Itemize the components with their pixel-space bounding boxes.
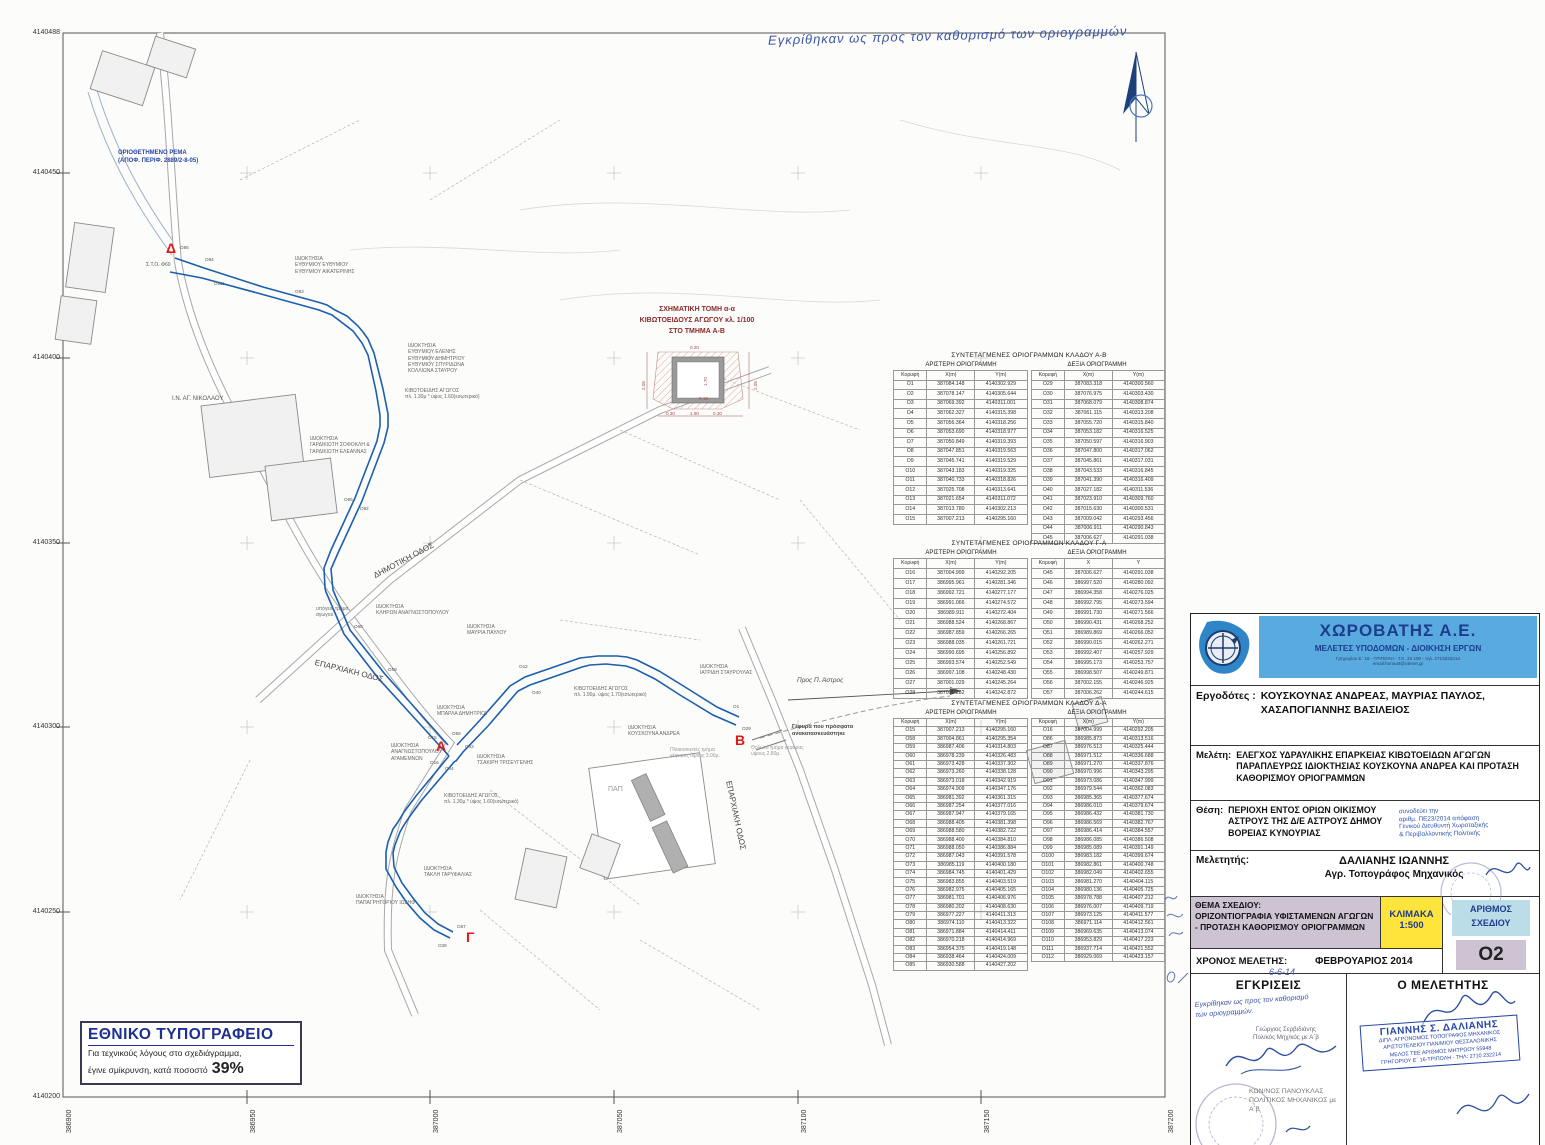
approvals-header: ΕΓΚΡΙΣΕΙΣ <box>1191 978 1346 992</box>
table-row: O94386986.0104140379.674 <box>1031 802 1165 810</box>
employers-value: ΚΟΥΣΚΟΥΝΑΣ ΑΝΔΡΕΑΣ, ΜΑΥΡΙΑΣ ΠΑΥΛΟΣ, ΧΑΣΑ… <box>1261 690 1534 741</box>
table-row: O58387004.8614140295.354 <box>894 735 1028 743</box>
map-label: ΙΔΙΟΚΤΗΣΙΑ ΕΥΘΥΜΙΟΥ ΕΥΘΥΜΙΟΥ ΕΥΘΥΜΙΟΥ ΑΙ… <box>295 256 355 275</box>
table-row: O111386937.7144140421.552 <box>1031 945 1165 953</box>
table-row: O55386998.5074140249.871 <box>1031 669 1165 679</box>
table-row: O35387050.5974140316.903 <box>1031 438 1165 448</box>
table-row: O80386974.1104140413.322 <box>894 920 1028 928</box>
map-label: ΙΔΙΟΚΤΗΣΙΑ ΜΠΑΡΛΑ ΔΗΜΗΤΡΙΟΥ <box>437 705 488 718</box>
table-row: O2387078.1474140305.644 <box>894 390 1028 400</box>
reduction-stamp-line2: έγινε σμίκρυνση, κατά ποσοστό <box>88 1065 208 1075</box>
table-row: O87386976.5134140325.444 <box>1031 744 1165 752</box>
table-group-title: ΣΥΝΤΕΤΑΓΜΕΝΕΣ ΟΡΙΟΓΡΑΜΜΩΝ ΚΛΑΔΟΥ Α-Β <box>893 352 1165 359</box>
location-row: Θέση: ΠΕΡΙΟΧΗ ΕΝΤΟΣ ΟΡΙΩΝ ΟΙΚΙΣΜΟΥ ΑΣΤΡΟ… <box>1191 801 1539 851</box>
table-subheader: ΔΕΞΙΑ ΟΡΙΟΓΡΑΜΜΗ <box>1029 550 1165 556</box>
table-row: O74386984.7454140401.429 <box>894 870 1028 878</box>
reduction-percent: 39% <box>212 1060 244 1077</box>
table-row: O61386973.4284140337.302 <box>894 760 1028 768</box>
map-label: ΟΡΙΟΘΕΤΗΜΕΝΟ ΡΕΜΑ (ΑΠΟΦ. ΠΕΡΙΦ. 2889/2-8… <box>118 150 198 165</box>
vertex-label: O16 <box>430 760 439 765</box>
table-column-header: X(m) <box>927 559 975 569</box>
table-row: O9387045.7414140319.529 <box>894 457 1028 467</box>
company-band: ΧΩΡΟΒΑΤΗΣ Α.Ε. ΜΕΛΕΤΕΣ ΥΠΟΔΟΜΩΝ - ΔΙΟΙΚΗ… <box>1259 616 1537 678</box>
designer-rect-stamp: ΓΙΑΝΝΗΣ Σ. ΔΑΛΙΑΝΗΣ ΔΙΠΛ. ΑΓΡΟΝΟΜΟΣ ΤΟΠΟ… <box>1360 1015 1521 1072</box>
map-label: Θολωτό τμήμα γέφυρας ύψους 2.80μ. <box>751 745 804 758</box>
table-row: O90386970.9964140343.295 <box>1031 769 1165 777</box>
subject-value: ΟΡΙΖΟΝΤΙΟΓΡΑΦΙΑ ΥΦΙΣΤΑΜΕΝΩΝ ΑΓΩΓΩΝ - ΠΡΟ… <box>1195 911 1376 933</box>
table-row: O78386980.2024140408.630 <box>894 903 1028 911</box>
y-axis-tick: 4140450 <box>22 169 60 176</box>
scale-value: 1:500 <box>1381 920 1442 931</box>
table-row: O57387006.2624140244.615 <box>1031 689 1165 699</box>
table-row: O84386938.4644140424.009 <box>894 953 1028 961</box>
subject-cell: ΘΕΜΑ ΣΧΕΔΙΟΥ: ΟΡΙΖΟΝΤΙΟΓΡΑΦΙΑ ΥΦΙΣΤΑΜΕΝΩ… <box>1191 897 1381 948</box>
table-row: O69386988.5804140382.722 <box>894 828 1028 836</box>
table-column-header: Y(m) <box>1112 371 1164 381</box>
drawing-number-label-cell: ΑΡΙΘΜΟΣ ΣΧΕΔΙΟΥ <box>1452 900 1530 936</box>
map-label: ΙΔΙΟΚΤΗΣΙΑ ΓΑΡΔΙΚΙΩΤΗ ΣΟΦΟΚΛΗ & ΓΑΡΔΙΚΙΩ… <box>310 436 370 455</box>
table-group-title: ΣΥΝΤΕΤΑΓΜΕΝΕΣ ΟΡΙΟΓΡΑΜΜΩΝ ΚΛΑΔΟΥ Δ-Α <box>893 700 1165 707</box>
table-row: O36387047.8004140317.062 <box>1031 447 1165 457</box>
table-row: O98386986.0854140386.508 <box>1031 836 1165 844</box>
y-axis-tick: 4140200 <box>22 1093 60 1100</box>
table-row: O101386982.8614140400.748 <box>1031 861 1165 869</box>
table-row: O95386986.4324140381.730 <box>1031 811 1165 819</box>
x-axis-tick: 386950 <box>250 1110 257 1133</box>
table-row: O93386985.3654140377.674 <box>1031 794 1165 802</box>
map-label: ΙΔΙΟΚΤΗΣΙΑ ΑΝΑΓΝΩΣΤΟΠΟΥΛΟΥ ΑΓΑΜΕΜΝΩΝ <box>391 743 442 762</box>
map-label: ΚΙΒΩΤΟΕΙΔΗΣ ΑΓΩΓΟΣ πλ. 1.30μ.* ύψος 1.60… <box>444 793 519 806</box>
map-label: ΙΔΙΟΚΤΗΣΙΑ ΤΣΑΚΙΡΗ ΤΡΙΣΕΥΓΕΝΗΣ <box>477 754 533 767</box>
table-row: O22386987.8594140266.265 <box>894 629 1028 639</box>
table-row: O41387023.9104140309.760 <box>1031 495 1165 505</box>
location-value: ΠΕΡΙΟΧΗ ΕΝΤΟΣ ΟΡΙΩΝ ΟΙΚΙΣΜΟΥ ΑΣΤΡΟΥΣ ΤΗΣ… <box>1228 805 1413 846</box>
node-marker-Α: Α <box>436 738 446 754</box>
table-row: O23386988.0354140261.721 <box>894 639 1028 649</box>
vertex-label: O1 <box>733 704 739 709</box>
table-row: O16387004.9994140292.205 <box>1031 727 1165 735</box>
table-subheader: ΑΡΙΣΤΕΡΗ ΟΡΙΟΓΡΑΜΜΗ <box>893 710 1029 716</box>
table-row: O19386991.0664140274.572 <box>894 599 1028 609</box>
table-column-header: Κορυφή <box>1031 371 1064 381</box>
table-row: O26386997.1084140248.430 <box>894 669 1028 679</box>
table-row: O66386987.2544140377.016 <box>894 802 1028 810</box>
contour-lines <box>350 120 1120 302</box>
table-row: O106386976.0074140409.719 <box>1031 903 1165 911</box>
map-label: Ι.Ν. ΑΓ. ΝΙΚΟΛΑΟΥ <box>172 396 223 404</box>
table-row: O56387002.1554140246.925 <box>1031 679 1165 689</box>
map-label: ΙΔΙΟΚΤΗΣΙΑ ΚΛΗΡΩΝ ΑΝΑΓΝΩΣΤΟΠΟΥΛΟΥ <box>376 604 449 617</box>
map-label: ΙΔΙΟΚΤΗΣΙΑ ΠΑΠΑΓΡΗΓΟΡΙΟΥ ΙΩΣΗΦ <box>356 894 415 907</box>
table-row: O18386992.7214140277.177 <box>894 589 1028 599</box>
designer-extra-signature <box>1447 1074 1537 1144</box>
handwriting-marks <box>1165 896 1188 983</box>
coordinate-table: ΚορυφήX(m)Y(m)O16387004.9994140292.205O1… <box>893 558 1028 699</box>
table-row: O42387015.6304140300.531 <box>1031 505 1165 515</box>
table-row: O33387055.7204140315.840 <box>1031 418 1165 428</box>
coordinate-table: ΚορυφήX(m)Y(m)O29387083.3184140300.560O3… <box>1031 370 1166 544</box>
table-row: O40387027.1824140311.536 <box>1031 486 1165 496</box>
table-row: O21386988.5244140268.867 <box>894 619 1028 629</box>
table-row: O107386973.1254140411.577 <box>1031 911 1165 919</box>
table-column-header: X <box>1064 559 1112 569</box>
table-row: O5387056.3644140318.256 <box>894 418 1028 428</box>
map-label: ΠΑΠ <box>608 786 623 795</box>
vertex-label: O60 <box>354 624 363 629</box>
table-row: O12387025.7084140313.641 <box>894 486 1028 496</box>
x-axis-tick: 386900 <box>66 1110 73 1133</box>
table-row: O86386985.8734140313.516 <box>1031 735 1165 743</box>
vertex-label: O58 <box>452 731 461 736</box>
table-row: O24386990.6954140256.892 <box>894 649 1028 659</box>
y-axis-tick: 4140250 <box>22 908 60 915</box>
table-row: O16387004.9994140292.205 <box>894 569 1028 579</box>
reduction-stamp-title: ΕΘΝΙΚΟ ΤΥΠΟΓΡΑΦΕΙΟ <box>88 1026 294 1046</box>
table-row: O4387062.3274140315.398 <box>894 409 1028 419</box>
node-marker-Γ: Γ <box>466 929 474 945</box>
table-row: O30387076.9754140303.430 <box>1031 390 1165 400</box>
table-row: O52386990.0154140262.271 <box>1031 639 1165 649</box>
table-column-header: Y(m) <box>1112 719 1164 727</box>
x-axis-tick: 387000 <box>433 1110 440 1133</box>
table-column-header: Κορυφή <box>1031 719 1064 727</box>
table-row: O34387053.1824140316.525 <box>1031 428 1165 438</box>
vertex-label: O40 <box>532 690 541 695</box>
table-row: O14387013.7804140302.213 <box>894 505 1028 515</box>
vertex-label: O12 <box>519 664 528 669</box>
table-row: O7387050.8494140319.393 <box>894 438 1028 448</box>
section-subtitle: ΚΙΒΩΤΟΕΙΔΟΥΣ ΑΓΩΓΟΥ κλ. 1/100 <box>612 317 782 325</box>
table-row: O104386980.1364140405.725 <box>1031 886 1165 894</box>
table-subheader: ΔΕΞΙΑ ΟΡΙΟΓΡΑΜΜΗ <box>1029 710 1165 716</box>
table-group: ΣΥΝΤΕΤΑΓΜΕΝΕΣ ΟΡΙΟΓΡΑΜΜΩΝ ΚΛΑΔΟΥ Δ-ΑΑΡΙΣ… <box>893 700 1165 971</box>
table-column-header: X(m) <box>927 371 975 381</box>
map-label: ΚΙΒΩΤΟΕΙΔΗΣ ΑΓΩΓΟΣ πλ. 1.90μ. ύψος 1.70(… <box>574 686 647 699</box>
employers-row: Εργοδότες : ΚΟΥΣΚΟΥΝΑΣ ΑΝΔΡΕΑΣ, ΜΑΥΡΙΑΣ … <box>1191 686 1539 746</box>
coordinate-table: ΚορυφήX(m)Y(m)O15387007.2134140295.160O5… <box>893 718 1028 971</box>
approvals-section: ΕΓΚΡΙΣΕΙΣ Εγκρίθηκαν ως προς τον καθορισ… <box>1191 974 1539 1145</box>
table-row: O62386973.2604140338.128 <box>894 769 1028 777</box>
map-label: ΙΔΙΟΚΤΗΣΙΑ ΙΑΤΡΙΔΗ ΣΤΑΥΡΟΥΛΑΣ <box>700 664 752 677</box>
table-column-header: Y(m) <box>975 719 1027 727</box>
table-row: O65386981.3924140361.315 <box>894 794 1028 802</box>
table-row: O82386970.2184140414.969 <box>894 937 1028 945</box>
table-row: O10387043.1834140319.325 <box>894 466 1028 476</box>
table-row: O43387009.0424140293.456 <box>1031 514 1165 524</box>
vertex-label: O29 <box>742 726 751 731</box>
table-row: O8387047.8514140319.563 <box>894 447 1028 457</box>
table-column-header: Y(m) <box>975 371 1027 381</box>
reduction-stamp-line1: Για τεχνικούς λόγους στο σχεδιάγραμμα, <box>88 1048 294 1059</box>
table-subheader: ΔΕΞΙΑ ΟΡΙΟΓΡΑΜΜΗ <box>1029 362 1165 368</box>
vertex-label: O15 <box>428 735 437 740</box>
designer-label: Μελετητής: <box>1196 855 1249 892</box>
table-row: O99386985.0894140391.149 <box>1031 844 1165 852</box>
scale-cell: ΚΛΙΜΑΚΑ 1:500 <box>1381 897 1442 948</box>
table-row: O45387006.6274140291.038 <box>1031 569 1165 579</box>
section-subtitle2: ΣΤΟ ΤΜΗΜΑ Α-Β <box>612 328 782 336</box>
table-row: O47386994.3584140276.025 <box>1031 589 1165 599</box>
map-label: ΙΔΙΟΚΤΗΣΙΑ ΕΥΘΥΜΙΟΥ ΕΛΕΝΗΣ ΕΥΘΥΜΙΟΥ ΔΗΜΗ… <box>408 343 465 374</box>
section-title: ΣΧΗΜΑΤΙΚΗ ΤΟΜΗ α-α <box>612 306 782 314</box>
dim-br: 0.30 <box>713 411 722 416</box>
table-row: O1387084.1484140302.929 <box>894 380 1028 390</box>
y-axis-tick: 4140350 <box>22 539 60 546</box>
study-time-row: ΧΡΟΝΟΣ ΜΕΛΕΤΗΣ: ΦΕΒΡΟΥΑΡΙΟΣ 2014 6-6-14 <box>1191 949 1442 973</box>
dim-wall: 0.15 <box>699 396 708 401</box>
blue-stamp-note: συνοδεύει την αριθμ. ΠΕ23/2014 απόφαση Γ… <box>1399 806 1538 839</box>
table-row: O112386929.0694140423.157 <box>1031 953 1165 961</box>
table-row: O38387043.5334140316.845 <box>1031 466 1165 476</box>
map-label: ΙΔΙΟΚΤΗΣΙΑ ΜΑΥΡΙΑ ΠΑΥΛΟΥ <box>467 624 506 637</box>
dim-bl: 0.30 <box>666 411 675 416</box>
table-column-header: Κορυφή <box>894 719 927 727</box>
table-row: O49386991.7304140271.566 <box>1031 609 1165 619</box>
table-group: ΣΥΝΤΕΤΑΓΜΕΝΕΣ ΟΡΙΟΓΡΑΜΜΩΝ ΚΛΑΔΟΥ Α-ΒΑΡΙΣ… <box>893 352 1165 544</box>
dim-inner: 1.70 <box>703 377 708 386</box>
coordinate-table: ΚορυφήXYO45387006.6274140291.038O4638699… <box>1031 558 1166 699</box>
table-column-header: Κορυφή <box>894 371 927 381</box>
study-label: Μελέτη: <box>1196 750 1231 796</box>
reduction-stamp: ΕΘΝΙΚΟ ΤΥΠΟΓΡΑΦΕΙΟ Για τεχνικούς λόγους … <box>80 1021 302 1085</box>
table-row: O44387006.9114140290.843 <box>1031 524 1165 534</box>
approvals-cell: ΕΓΚΡΙΣΕΙΣ Εγκρίθηκαν ως προς τον καθορισ… <box>1191 974 1347 1145</box>
table-row: O71386988.0504140386.884 <box>894 844 1028 852</box>
coordinate-table: ΚορυφήX(m)Y(m)O16387004.9994140292.205O8… <box>1031 718 1166 962</box>
y-axis-tick: 4140488 <box>22 29 60 36</box>
table-row: O89386971.2704140337.876 <box>1031 760 1165 768</box>
vertex-label: O59 <box>388 667 397 672</box>
x-axis-tick: 387200 <box>1168 1110 1175 1133</box>
map-label: Σ.Τ.Ο. Φ60 <box>146 262 171 268</box>
table-row: O109386969.6354140413.074 <box>1031 928 1165 936</box>
map-label: Προς Π. Άστρος <box>797 677 843 685</box>
vertex-label: O92 <box>360 506 369 511</box>
table-row: O15387007.2134140295.160 <box>894 727 1028 735</box>
map-label: ΙΔΙΟΚΤΗΣΙΑ ΚΟΥΣΚΟΥΝΑ ΑΝΔΡΕΑ <box>628 725 680 738</box>
table-row: O60386978.2394140326.483 <box>894 752 1028 760</box>
table-row: O17386995.9614140281.346 <box>894 579 1028 589</box>
table-column-header: Y(m) <box>975 559 1027 569</box>
table-row: O31387068.0794140308.874 <box>1031 399 1165 409</box>
x-axis-tick: 387150 <box>984 1110 991 1133</box>
y-axis-tick: 4140400 <box>22 354 60 361</box>
drawing-number: Ο2 <box>1456 940 1526 970</box>
company-subtitle: ΜΕΛΕΤΕΣ ΥΠΟΔΟΜΩΝ - ΔΙΟΙΚΗΣΗ ΕΡΓΩΝ <box>1259 644 1537 653</box>
table-row: O25386993.5744140252.549 <box>894 659 1028 669</box>
dim-top: 0.20 <box>690 345 699 350</box>
table-column-header: X(m) <box>1064 719 1112 727</box>
table-row: O53386992.4074140257.929 <box>1031 649 1165 659</box>
table-row: O37387045.8614140317.031 <box>1031 457 1165 467</box>
culvert-branch-alpha-beta <box>455 656 739 761</box>
table-row: O110386953.8294140417.223 <box>1031 937 1165 945</box>
table-row: O96386986.5694140382.767 <box>1031 819 1165 827</box>
approvals-handwritten-note: Εγκρίθηκαν ως προς τον καθορισμό των ορι… <box>1194 992 1309 1020</box>
study-row: Μελέτη: ΕΛΕΓΧΟΣ ΥΔΡΑΥΛΙΚΗΣ ΕΠΑΡΚΕΙΑΣ ΚΙΒ… <box>1191 746 1539 801</box>
map-label: Πλακοσκεπές τμήμα γέφυρας ύψους 3.00μ. <box>670 747 720 760</box>
table-row: O29387083.3184140300.560 <box>1031 380 1165 390</box>
table-row: O76386982.9754140405.165 <box>894 886 1028 894</box>
dim-bm: 1.90 <box>690 411 699 416</box>
designer-stamp-cell: Ο ΜΕΛΕΤΗΤΗΣ ΓΙΑΝΝΗΣ Σ. ΔΑΛΙΑΝΗΣ ΔΙΠΛ. ΑΓ… <box>1347 974 1539 1145</box>
table-row: O54386995.1734140253.757 <box>1031 659 1165 669</box>
table-column-header: Κορυφή <box>894 559 927 569</box>
table-row: O39387041.3904140316.409 <box>1031 476 1165 486</box>
approvals-round-stamp <box>1191 1054 1341 1145</box>
table-row: O88386971.5124140336.688 <box>1031 752 1165 760</box>
table-row: O46386997.5204140280.092 <box>1031 579 1165 589</box>
subject-scale-grid: ΘΕΜΑ ΣΧΕΔΙΟΥ: ΟΡΙΖΟΝΤΙΟΓΡΑΦΙΑ ΥΦΙΣΤΑΜΕΝΩ… <box>1191 897 1539 974</box>
table-row: O50386990.4314140268.252 <box>1031 619 1165 629</box>
coordinate-table: ΚορυφήX(m)Y(m)O1387084.1484140302.929O23… <box>893 370 1028 525</box>
company-name: ΧΩΡΟΒΑΤΗΣ Α.Ε. <box>1259 616 1537 641</box>
vertex-label: O111 <box>214 281 225 286</box>
table-row: O68386988.4054140381.398 <box>894 819 1028 827</box>
table-row: O32387061.1154140313.208 <box>1031 409 1165 419</box>
location-label: Θέση: <box>1196 805 1223 846</box>
table-row: O13387021.6544140311.072 <box>894 495 1028 505</box>
map-label: υπόγειο τμήμα αγωγού <box>316 606 348 619</box>
table-row: O91386973.0864140347.999 <box>1031 777 1165 785</box>
company-email: email:horovat@otenet.gr <box>1259 661 1537 666</box>
time-value: ΦΕΒΡΟΥΑΡΙΟΣ 2014 <box>1315 956 1413 967</box>
map-label: ΙΔΙΟΚΤΗΣΙΑ ΤΑΚΛΗ ΓΑΡΥΦΑΛΙΑΣ <box>424 866 472 879</box>
node-marker-Δ: Δ <box>166 240 176 256</box>
node-marker-Β: Β <box>735 732 745 748</box>
table-row: O70386988.4004140384.810 <box>894 836 1028 844</box>
dim-right: 2.05 <box>753 381 758 390</box>
vertex-label: O57 <box>457 924 466 929</box>
table-row: O92386979.5444140362.083 <box>1031 786 1165 794</box>
vertex-label: O83 <box>295 289 304 294</box>
y-axis-tick: 4140300 <box>22 723 60 730</box>
vertex-label: O43 <box>465 744 474 749</box>
table-row: O51386989.8694140266.052 <box>1031 629 1165 639</box>
table-subheader: ΑΡΙΣΤΕΡΗ ΟΡΙΟΓΡΑΜΜΗ <box>893 362 1029 368</box>
table-row: O15387007.2134140295.160 <box>894 514 1028 524</box>
vertex-label: O84 <box>205 257 214 262</box>
study-value: ΕΛΕΓΧΟΣ ΥΔΡΑΥΛΙΚΗΣ ΕΠΑΡΚΕΙΑΣ ΚΙΒΩΤΟΕΙΔΩΝ… <box>1236 750 1534 796</box>
x-axis-tick: 387050 <box>617 1110 624 1133</box>
table-row: O75386983.8554140403.519 <box>894 878 1028 886</box>
vertex-label: O65 <box>344 497 353 502</box>
table-row: O63386973.0184140342.919 <box>894 777 1028 785</box>
table-row: O105386978.7884140407.212 <box>1031 895 1165 903</box>
table-row: O85386930.5884140427.202 <box>894 962 1028 970</box>
table-group: ΣΥΝΤΕΤΑΓΜΕΝΕΣ ΟΡΙΟΓΡΑΜΜΩΝ ΚΛΑΔΟΥ Γ-ΑΑΡΙΣ… <box>893 540 1165 699</box>
table-row: O73386985.1194140400.180 <box>894 861 1028 869</box>
title-block: ΧΩΡΟΒΑΤΗΣ Α.Ε. ΜΕΛΕΤΕΣ ΥΠΟΔΟΜΩΝ - ΔΙΟΙΚΗ… <box>1190 613 1540 1145</box>
table-column-header: Y <box>1112 559 1164 569</box>
subject-label: ΘΕΜΑ ΣΧΕΔΙΟΥ: <box>1195 900 1376 911</box>
table-row: O83386954.3754140419.148 <box>894 945 1028 953</box>
table-row: O67386987.9474140379.165 <box>894 811 1028 819</box>
table-row: O102386982.0494140402.655 <box>1031 870 1165 878</box>
table-column-header: X(m) <box>927 719 975 727</box>
table-row: O11387040.7334140318.826 <box>894 476 1028 486</box>
table-column-header: Κορυφή <box>1031 559 1064 569</box>
scale-label: ΚΛΙΜΑΚΑ <box>1381 909 1442 920</box>
table-subheader: ΑΡΙΣΤΕΡΗ ΟΡΙΟΓΡΑΜΜΗ <box>893 550 1029 556</box>
table-row: O97386986.4144140384.557 <box>1031 828 1165 836</box>
table-row: O77386981.7014140406.976 <box>894 895 1028 903</box>
table-row: O3387069.3924140311.001 <box>894 399 1028 409</box>
map-label: ΚΙΒΩΤΟΕΙΔΗΣ ΑΓΩΓΟΣ πλ. 1.30μ * ύψος 1.60… <box>405 388 480 401</box>
approver1-name: Γεώργιος Σερβιδιάνης <box>1253 1026 1319 1034</box>
company-logo-icon <box>1193 616 1257 680</box>
table-row: O27387001.0294140245.264 <box>894 679 1028 689</box>
table-row: O108386971.1144140412.561 <box>1031 920 1165 928</box>
table-row: O103386981.2704140404.115 <box>1031 878 1165 886</box>
table-row: O100386983.1824140399.674 <box>1031 853 1165 861</box>
table-row: O81386971.8844140414.411 <box>894 928 1028 936</box>
drawing-sheet: 4140488414045041404004140350414030041402… <box>0 0 1545 1145</box>
time-label: ΧΡΟΝΟΣ ΜΕΛΕΤΗΣ: <box>1196 956 1287 967</box>
table-row: O79386977.2274140411.313 <box>894 911 1028 919</box>
north-arrow-icon <box>1123 52 1152 142</box>
vertex-label: O44 <box>445 766 454 771</box>
table-row: O6387053.6904140318.977 <box>894 428 1028 438</box>
table-group-title: ΣΥΝΤΕΤΑΓΜΕΝΕΣ ΟΡΙΟΓΡΑΜΜΩΝ ΚΛΑΔΟΥ Γ-Α <box>893 540 1165 547</box>
map-label: Γέφυρα που πρόσφατα ανακατασκευάστηκε <box>792 724 853 738</box>
x-axis-tick: 387100 <box>801 1110 808 1133</box>
table-row: O48386992.7954140273.594 <box>1031 599 1165 609</box>
employers-label: Εργοδότες : <box>1196 690 1256 741</box>
dim-left: 2.05 <box>641 381 646 390</box>
designer-row: Μελετητής: ΔΑΛΙΑΝΗΣ ΙΩΑΝΝΗΣ Αγρ. Τοπογρά… <box>1191 851 1539 897</box>
table-row: O72386987.0434140391.578 <box>894 853 1028 861</box>
table-row: O64386974.9094140347.176 <box>894 786 1028 794</box>
frame-ticks <box>56 173 981 1104</box>
table-row: O28387005.2824140242.872 <box>894 689 1028 699</box>
title-block-header: ΧΩΡΟΒΑΤΗΣ Α.Ε. ΜΕΛΕΤΕΣ ΥΠΟΔΟΜΩΝ - ΔΙΟΙΚΗ… <box>1191 614 1539 686</box>
vertex-label: O85 <box>180 245 189 250</box>
table-row: O20386989.9114140272.404 <box>894 609 1028 619</box>
table-row: O59386987.4064140314.803 <box>894 744 1028 752</box>
vertex-label: O28 <box>438 943 447 948</box>
table-column-header: X(m) <box>1064 371 1112 381</box>
